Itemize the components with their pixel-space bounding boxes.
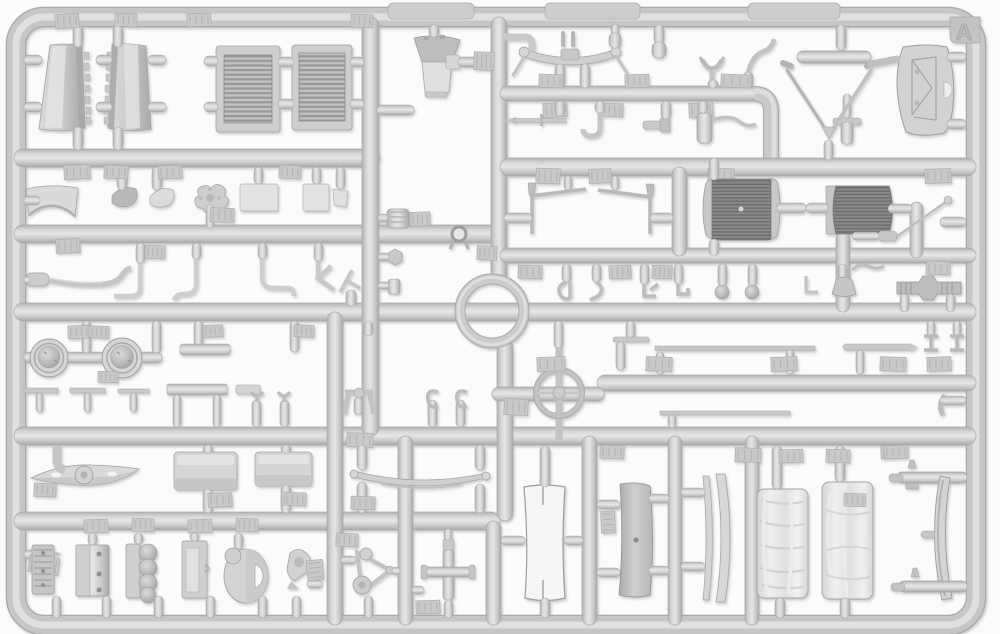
svg-text:A: A xyxy=(956,19,973,45)
